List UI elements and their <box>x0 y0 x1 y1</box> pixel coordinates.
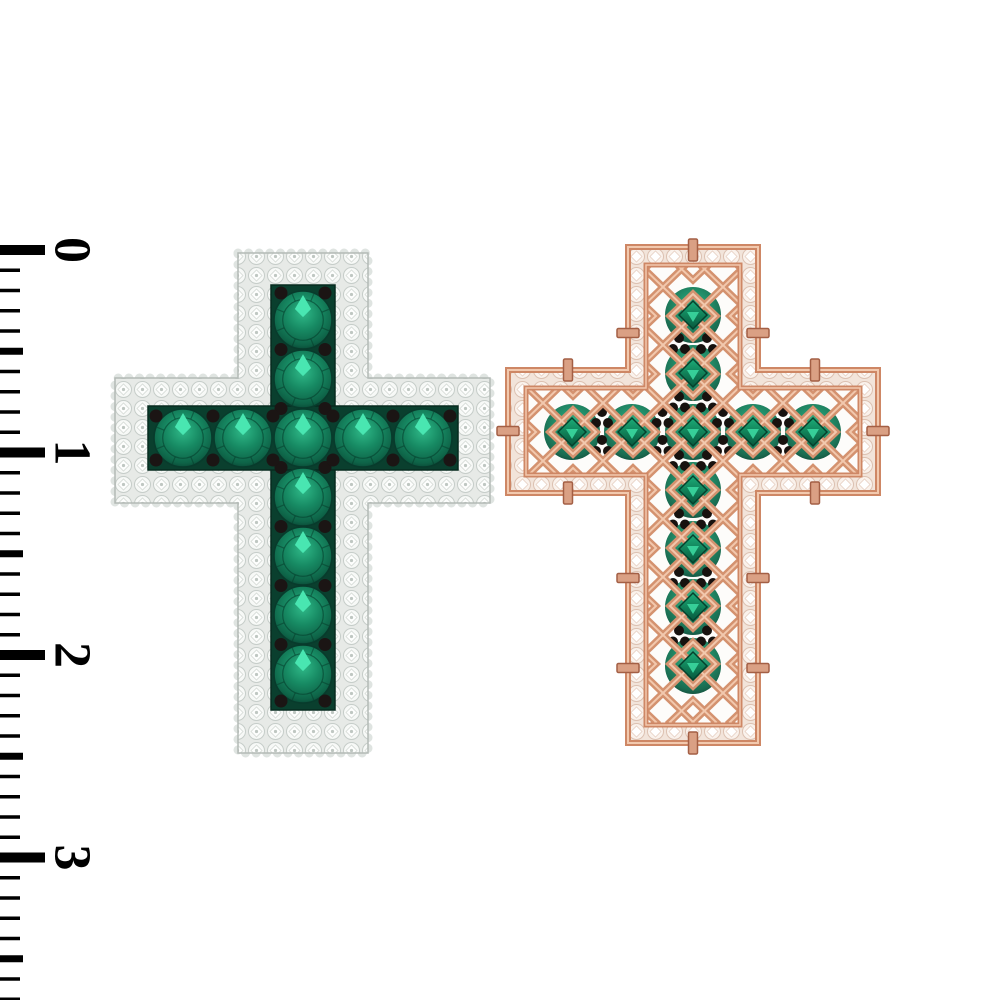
black-accent-bead <box>150 410 163 423</box>
black-accent-bead <box>207 454 220 467</box>
ruler-label-1: 1 <box>44 440 101 466</box>
ruler-tick <box>0 815 20 819</box>
frame-tab <box>617 664 639 673</box>
ruler-tick <box>0 512 20 516</box>
black-accent-bead <box>387 410 400 423</box>
black-accent-bead <box>275 520 288 533</box>
emerald-stone <box>274 645 332 703</box>
ruler-tick <box>0 694 20 698</box>
frame-tab <box>747 574 769 583</box>
black-accent-bead <box>150 454 163 467</box>
ruler-tick <box>0 572 20 576</box>
frame-tab <box>497 427 519 436</box>
black-accent-bead <box>327 410 340 423</box>
ruler-tick <box>0 734 20 738</box>
ruler-label-2: 2 <box>44 642 101 668</box>
ruler-tick <box>0 633 20 637</box>
black-accent-bead <box>275 695 288 708</box>
ruler-tick <box>0 917 20 921</box>
frame-tab <box>689 239 698 261</box>
ruler-tick <box>0 714 20 718</box>
ruler-tick <box>0 836 20 840</box>
black-accent-bead <box>327 454 340 467</box>
black-accent-bead <box>444 454 457 467</box>
frame-tab <box>564 482 573 504</box>
emerald-stone <box>334 409 392 467</box>
ruler-tick <box>0 613 20 617</box>
black-accent-bead <box>444 410 457 423</box>
ruler: 0 1 2 3 <box>0 237 101 1000</box>
frame-tab <box>617 329 639 338</box>
emerald-stone <box>214 409 272 467</box>
black-accent-bead <box>275 638 288 651</box>
black-accent-bead <box>319 695 332 708</box>
emerald-stone <box>394 409 452 467</box>
ruler-tick <box>0 269 20 273</box>
ruler-tick <box>0 550 23 557</box>
ruler-tick <box>0 448 45 458</box>
ruler-tick <box>0 390 20 394</box>
frame-tab <box>747 664 769 673</box>
frame-tab <box>689 732 698 754</box>
ruler-label-3: 3 <box>44 845 101 871</box>
frame-tab <box>811 359 820 381</box>
black-accent-bead <box>319 520 332 533</box>
ruler-tick <box>0 674 20 678</box>
black-accent-bead <box>319 287 332 300</box>
ruler-tick <box>0 937 20 941</box>
emerald-stone <box>274 527 332 585</box>
ruler-tick <box>0 955 23 962</box>
ruler-ticks <box>0 245 45 1000</box>
black-accent-bead <box>267 410 280 423</box>
frame-tab <box>564 359 573 381</box>
ruler-label-0: 0 <box>44 237 101 263</box>
black-accent-bead <box>207 410 220 423</box>
ruler-tick <box>0 410 20 414</box>
ruler-tick <box>0 471 20 475</box>
black-accent-bead <box>319 579 332 592</box>
emerald-stone <box>154 409 212 467</box>
ruler-tick <box>0 593 20 597</box>
ruler-tick <box>0 309 20 313</box>
ruler-tick <box>0 896 20 900</box>
black-accent-bead <box>267 454 280 467</box>
frame-tab <box>617 574 639 583</box>
ruler-tick <box>0 775 20 779</box>
ruler-tick <box>0 348 23 355</box>
scene-svg: 0 1 2 3 <box>0 0 1000 1000</box>
black-accent-bead <box>387 454 400 467</box>
frame-tab <box>867 427 889 436</box>
ruler-tick <box>0 876 20 880</box>
ruler-tick <box>0 532 20 536</box>
black-accent-bead <box>275 579 288 592</box>
emerald-stone <box>274 291 332 349</box>
ruler-tick <box>0 795 20 799</box>
frame-tab <box>747 329 769 338</box>
ruler-tick <box>0 753 23 760</box>
black-accent-bead <box>275 287 288 300</box>
black-accent-bead <box>319 638 332 651</box>
emerald-stone <box>274 468 332 526</box>
ruler-tick <box>0 650 45 660</box>
frame-tab <box>811 482 820 504</box>
back-cross-pendant <box>497 239 889 754</box>
ruler-tick <box>0 853 45 863</box>
ruler-tick <box>0 245 45 255</box>
ruler-tick <box>0 289 20 293</box>
ruler-tick <box>0 370 20 374</box>
product-render-canvas: 0 1 2 3 <box>0 0 1000 1000</box>
black-accent-bead <box>319 343 332 356</box>
front-cross-pendant <box>115 253 490 753</box>
ruler-tick <box>0 491 20 495</box>
emerald-stone <box>274 350 332 408</box>
ruler-tick <box>0 329 20 333</box>
ruler-tick <box>0 977 20 981</box>
emerald-stone <box>274 409 332 467</box>
ruler-tick <box>0 431 20 435</box>
emerald-stone <box>274 586 332 644</box>
black-accent-bead <box>275 343 288 356</box>
